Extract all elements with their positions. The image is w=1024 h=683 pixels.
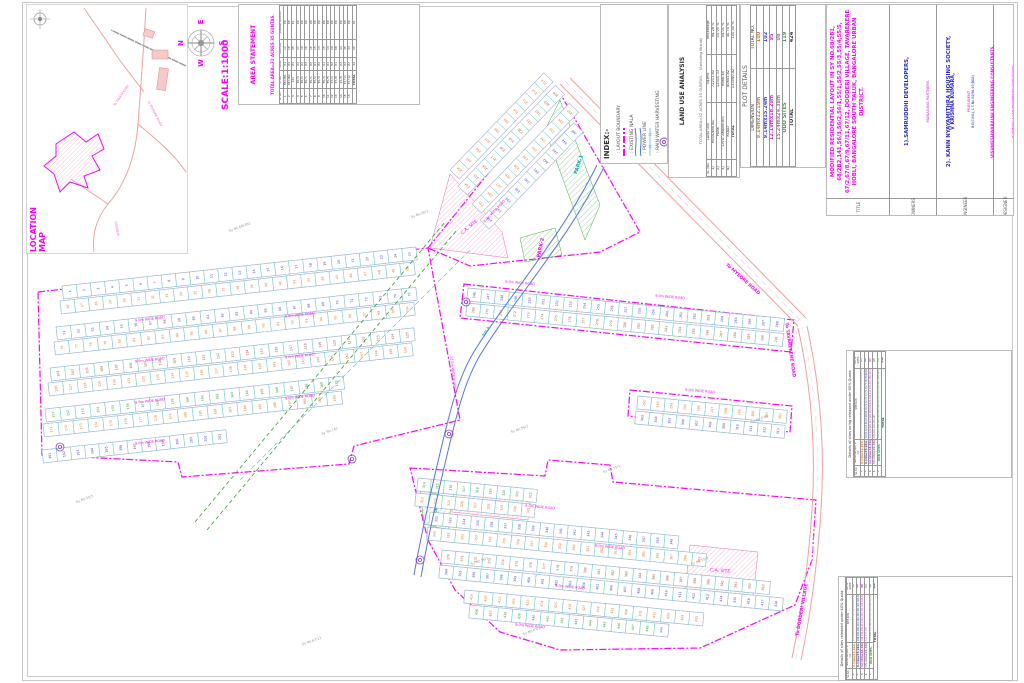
svg-text:106: 106 bbox=[129, 362, 134, 368]
svg-text:100: 100 bbox=[405, 306, 410, 312]
svg-text:61: 61 bbox=[206, 315, 210, 319]
area-statement-title: AREA STATEMENT bbox=[250, 25, 257, 85]
svg-text:289: 289 bbox=[746, 333, 751, 339]
svg-text:148: 148 bbox=[374, 350, 379, 356]
svg-text:314: 314 bbox=[422, 482, 427, 488]
svg-text:349: 349 bbox=[669, 539, 674, 545]
svg-text:163: 163 bbox=[230, 392, 235, 398]
svg-text:28: 28 bbox=[94, 301, 98, 305]
svg-text:139: 139 bbox=[243, 365, 248, 371]
svg-text:246: 246 bbox=[472, 292, 477, 298]
svg-text:110: 110 bbox=[187, 356, 192, 362]
svg-text:271: 271 bbox=[499, 310, 504, 316]
svg-text:290: 290 bbox=[760, 335, 765, 341]
svg-text:12: 12 bbox=[223, 272, 227, 276]
svg-text:48: 48 bbox=[377, 270, 381, 274]
svg-text:365: 365 bbox=[641, 551, 646, 557]
svg-text:130: 130 bbox=[112, 379, 117, 385]
area-statement-total: TOTAL323501 bbox=[352, 6, 356, 104]
svg-text:330: 330 bbox=[513, 506, 518, 512]
svg-text:335: 335 bbox=[476, 520, 481, 526]
svg-text:6: 6 bbox=[139, 283, 143, 285]
svg-text:263: 263 bbox=[706, 314, 711, 320]
svg-text:77: 77 bbox=[74, 344, 78, 348]
legend-item: : RAIN WATER HARVESTING bbox=[652, 5, 665, 163]
svg-text:8: 8 bbox=[167, 279, 171, 281]
svg-text:261: 261 bbox=[679, 312, 684, 318]
svg-text:124: 124 bbox=[391, 333, 396, 339]
svg-text:192: 192 bbox=[62, 451, 67, 457]
svg-text:286: 286 bbox=[705, 329, 710, 335]
svg-text:43: 43 bbox=[306, 278, 310, 282]
svg-text:423: 423 bbox=[526, 599, 531, 605]
svg-text:56: 56 bbox=[134, 322, 138, 326]
svg-text:381: 381 bbox=[597, 568, 602, 574]
svg-text:280: 280 bbox=[623, 322, 628, 328]
svg-text:439: 439 bbox=[517, 613, 522, 619]
svg-text:102: 102 bbox=[70, 369, 75, 375]
svg-text:326: 326 bbox=[460, 501, 465, 507]
svg-text:293: 293 bbox=[656, 401, 661, 407]
svg-text:167: 167 bbox=[290, 385, 295, 391]
svg-text:384: 384 bbox=[638, 572, 643, 578]
svg-text:255: 255 bbox=[596, 304, 601, 310]
svg-text:277: 277 bbox=[581, 318, 586, 324]
svg-text:279: 279 bbox=[609, 320, 614, 326]
svg-text:57: 57 bbox=[148, 321, 152, 325]
svg-text:191: 191 bbox=[48, 452, 53, 458]
svg-text:91: 91 bbox=[276, 322, 280, 326]
svg-text:274: 274 bbox=[540, 314, 545, 320]
svg-text:258: 258 bbox=[637, 308, 642, 314]
svg-text:309: 309 bbox=[722, 423, 727, 429]
svg-text:1: 1 bbox=[68, 290, 72, 292]
svg-text:428: 428 bbox=[596, 606, 601, 612]
svg-text:27: 27 bbox=[80, 303, 84, 307]
svg-text:202: 202 bbox=[203, 435, 208, 441]
svg-text:432: 432 bbox=[652, 612, 657, 618]
svg-text:16: 16 bbox=[280, 266, 284, 270]
svg-text:154: 154 bbox=[96, 406, 101, 412]
svg-text:144: 144 bbox=[316, 356, 321, 362]
land-use-title: LAND USE ANALYSIS bbox=[679, 57, 686, 125]
svg-text:375: 375 bbox=[515, 561, 520, 567]
svg-text:421: 421 bbox=[497, 597, 502, 603]
svg-text:422: 422 bbox=[511, 598, 516, 604]
svg-text:75: 75 bbox=[407, 292, 411, 296]
svg-text:352: 352 bbox=[460, 534, 465, 540]
road-label: 9.0m WIDE ROAD bbox=[685, 388, 715, 395]
svg-text:281: 281 bbox=[636, 323, 641, 329]
svg-text:194: 194 bbox=[90, 448, 95, 454]
svg-text:374: 374 bbox=[501, 559, 506, 565]
svg-text:20: 20 bbox=[337, 260, 341, 264]
svg-text:5: 5 bbox=[125, 284, 129, 286]
svg-text:414: 414 bbox=[719, 595, 724, 601]
svg-text:284: 284 bbox=[678, 327, 683, 333]
release-total: TOTAL258 bbox=[881, 352, 885, 477]
svg-text:89: 89 bbox=[247, 325, 251, 329]
svg-text:389: 389 bbox=[706, 579, 711, 585]
svg-text:152: 152 bbox=[66, 410, 71, 416]
svg-text:427: 427 bbox=[582, 605, 587, 611]
svg-text:307: 307 bbox=[694, 420, 699, 426]
svg-text:37: 37 bbox=[221, 287, 225, 291]
svg-text:115: 115 bbox=[260, 348, 265, 354]
svg-text:68: 68 bbox=[307, 303, 311, 307]
release-table-60-quota: Details of sites being released under 60… bbox=[846, 350, 1012, 478]
svg-text:440: 440 bbox=[531, 614, 536, 620]
svg-text:17: 17 bbox=[294, 264, 298, 268]
svg-text:40: 40 bbox=[264, 283, 268, 287]
svg-text:136: 136 bbox=[199, 369, 204, 375]
svg-text:345: 345 bbox=[614, 533, 619, 539]
svg-text:79: 79 bbox=[103, 341, 107, 345]
svg-text:300: 300 bbox=[751, 410, 756, 416]
svg-text:94: 94 bbox=[319, 317, 323, 321]
svg-text:449: 449 bbox=[659, 627, 664, 633]
svg-text:19: 19 bbox=[323, 261, 327, 265]
svg-text:116: 116 bbox=[274, 346, 279, 352]
svg-text:272: 272 bbox=[512, 311, 517, 317]
svg-text:437: 437 bbox=[489, 610, 494, 616]
svg-text:58: 58 bbox=[163, 319, 167, 323]
svg-text:425: 425 bbox=[554, 602, 559, 608]
svg-text:98: 98 bbox=[377, 310, 381, 314]
svg-text:406: 406 bbox=[609, 585, 614, 591]
svg-text:137: 137 bbox=[214, 368, 219, 374]
svg-text:282: 282 bbox=[650, 324, 655, 330]
svg-text:302: 302 bbox=[778, 413, 783, 419]
svg-text:407: 407 bbox=[623, 586, 628, 592]
svg-text:3: 3 bbox=[96, 287, 100, 289]
svg-text:109: 109 bbox=[172, 358, 177, 364]
svg-text:262: 262 bbox=[692, 313, 697, 319]
svg-text:169: 169 bbox=[319, 382, 324, 388]
svg-text:138: 138 bbox=[228, 366, 233, 372]
svg-text:341: 341 bbox=[559, 528, 564, 534]
svg-text:283: 283 bbox=[664, 325, 669, 331]
svg-text:337: 337 bbox=[503, 523, 508, 529]
svg-text:149: 149 bbox=[389, 348, 394, 354]
svg-text:266: 266 bbox=[747, 318, 752, 324]
svg-text:51: 51 bbox=[62, 330, 66, 334]
survey-number-label: Sy No.56/2 bbox=[410, 209, 429, 219]
svg-text:394: 394 bbox=[444, 569, 449, 575]
svg-text:393: 393 bbox=[761, 584, 766, 590]
svg-text:429: 429 bbox=[610, 607, 615, 613]
svg-text:80: 80 bbox=[117, 339, 121, 343]
svg-text:319: 319 bbox=[488, 488, 493, 494]
svg-text:141: 141 bbox=[272, 361, 277, 367]
svg-text:380: 380 bbox=[583, 567, 588, 573]
svg-text:42: 42 bbox=[292, 279, 296, 283]
svg-text:313: 313 bbox=[776, 428, 781, 434]
svg-text:78: 78 bbox=[89, 342, 93, 346]
svg-text:298: 298 bbox=[724, 408, 729, 414]
svg-text:351: 351 bbox=[446, 532, 451, 538]
svg-text:171: 171 bbox=[49, 426, 54, 432]
svg-text:306: 306 bbox=[681, 419, 686, 425]
svg-text:321: 321 bbox=[515, 491, 520, 497]
svg-text:88: 88 bbox=[233, 326, 237, 330]
svg-text:273: 273 bbox=[526, 312, 531, 318]
svg-text:342: 342 bbox=[572, 529, 577, 535]
svg-text:2: 2 bbox=[82, 289, 86, 291]
svg-text:104: 104 bbox=[100, 366, 105, 372]
svg-text:181: 181 bbox=[198, 410, 203, 416]
svg-text:254: 254 bbox=[582, 303, 587, 309]
svg-text:99: 99 bbox=[391, 309, 395, 313]
svg-text:131: 131 bbox=[127, 377, 132, 383]
svg-text:175: 175 bbox=[109, 420, 114, 426]
svg-text:203: 203 bbox=[217, 434, 222, 440]
svg-text:200: 200 bbox=[175, 438, 180, 444]
svg-text:84: 84 bbox=[175, 333, 179, 337]
location-map-drawing: To MYSORE ROADTo TAVAREKEREDODDERI bbox=[26, 4, 188, 254]
svg-text:364: 364 bbox=[627, 550, 632, 556]
plot-details-title: PLOT DETAILS bbox=[741, 5, 750, 167]
svg-text:161: 161 bbox=[200, 395, 205, 401]
svg-text:118: 118 bbox=[303, 343, 308, 349]
svg-text:172: 172 bbox=[64, 425, 69, 431]
svg-text:83: 83 bbox=[161, 334, 165, 338]
road-label: 9.0m WIDE ROAD bbox=[655, 294, 685, 301]
svg-text:442: 442 bbox=[560, 617, 565, 623]
svg-text:101: 101 bbox=[56, 370, 61, 376]
svg-text:294: 294 bbox=[669, 403, 674, 409]
svg-text:332: 332 bbox=[434, 516, 439, 522]
svg-text:33: 33 bbox=[165, 293, 169, 297]
svg-text:146: 146 bbox=[345, 353, 350, 359]
svg-text:111: 111 bbox=[201, 354, 206, 360]
svg-text:418: 418 bbox=[774, 601, 779, 607]
svg-text:55: 55 bbox=[119, 324, 123, 328]
svg-text:74: 74 bbox=[393, 294, 397, 298]
svg-text:356: 356 bbox=[516, 539, 521, 545]
svg-text:297: 297 bbox=[710, 406, 715, 412]
svg-text:417: 417 bbox=[760, 599, 765, 605]
svg-text:344: 344 bbox=[600, 532, 605, 538]
svg-text:93: 93 bbox=[305, 318, 309, 322]
svg-text:379: 379 bbox=[569, 566, 574, 572]
svg-text:129: 129 bbox=[98, 381, 103, 387]
svg-text:333: 333 bbox=[448, 517, 453, 523]
svg-text:436: 436 bbox=[474, 609, 479, 615]
svg-text:285: 285 bbox=[691, 328, 696, 334]
svg-text:291: 291 bbox=[774, 336, 779, 342]
svg-text:30: 30 bbox=[122, 298, 126, 302]
svg-text:424: 424 bbox=[540, 601, 545, 607]
svg-text:85: 85 bbox=[189, 331, 193, 335]
svg-text:31: 31 bbox=[137, 297, 141, 301]
svg-text:166: 166 bbox=[275, 387, 280, 393]
svg-text:278: 278 bbox=[595, 319, 600, 325]
svg-text:397: 397 bbox=[485, 573, 490, 579]
svg-text:87: 87 bbox=[218, 328, 222, 332]
svg-text:44: 44 bbox=[321, 276, 325, 280]
svg-text:179: 179 bbox=[168, 413, 173, 419]
svg-text:265: 265 bbox=[734, 317, 739, 323]
svg-text:256: 256 bbox=[610, 305, 615, 311]
svg-text:178: 178 bbox=[153, 415, 158, 421]
compass-letter: E bbox=[197, 19, 205, 24]
plot-details-total: TOTAL424 bbox=[789, 6, 796, 167]
drawing-sheet: PARK-1PARK-2PARK-3C.A. SITEC.A. SITEC.A.… bbox=[0, 0, 1024, 683]
svg-text:64: 64 bbox=[249, 310, 253, 314]
svg-text:339: 339 bbox=[531, 525, 536, 531]
svg-text:184: 184 bbox=[243, 405, 248, 411]
svg-text:45: 45 bbox=[335, 275, 339, 279]
svg-text:411: 411 bbox=[678, 591, 683, 597]
svg-text:292: 292 bbox=[642, 400, 647, 406]
svg-text:81: 81 bbox=[132, 337, 136, 341]
legend-item: : LAYOUT BOUNDARY bbox=[613, 5, 626, 163]
svg-text:441: 441 bbox=[546, 616, 551, 622]
svg-text:35: 35 bbox=[193, 290, 197, 294]
svg-text:325: 325 bbox=[446, 499, 451, 505]
svg-text:196: 196 bbox=[118, 445, 123, 451]
svg-text:434: 434 bbox=[680, 614, 685, 620]
svg-text:268: 268 bbox=[775, 321, 780, 327]
svg-text:353: 353 bbox=[474, 535, 479, 541]
svg-text:9: 9 bbox=[181, 278, 185, 280]
svg-text:259: 259 bbox=[651, 309, 656, 315]
svg-text:444: 444 bbox=[588, 620, 593, 626]
svg-text:162: 162 bbox=[215, 393, 220, 399]
svg-text:348: 348 bbox=[655, 537, 660, 543]
svg-text:413: 413 bbox=[705, 594, 710, 600]
svg-text:377: 377 bbox=[542, 563, 547, 569]
svg-text:97: 97 bbox=[362, 312, 366, 316]
svg-text:323: 323 bbox=[420, 497, 425, 503]
survey-number-label: Sy No.56/3 bbox=[510, 424, 529, 434]
scale-label: SCALE:1:1000 bbox=[221, 14, 235, 110]
svg-text:382: 382 bbox=[610, 570, 615, 576]
svg-text:299: 299 bbox=[737, 409, 742, 415]
index-legend: INDEX:- : LAYOUT BOUNDARY : EXISTING NAL… bbox=[600, 4, 668, 164]
svg-text:405: 405 bbox=[595, 583, 600, 589]
svg-text:185: 185 bbox=[258, 403, 263, 409]
svg-text:133: 133 bbox=[156, 374, 161, 380]
svg-text:82: 82 bbox=[146, 336, 150, 340]
svg-text:18: 18 bbox=[308, 263, 312, 267]
svg-text:357: 357 bbox=[530, 540, 535, 546]
area-statement-table: AREA STATEMENT TOTAL AREA=32 ACRES 35 GU… bbox=[238, 4, 420, 105]
svg-text:399: 399 bbox=[513, 576, 518, 582]
svg-text:398: 398 bbox=[499, 574, 504, 580]
svg-text:65: 65 bbox=[263, 308, 267, 312]
svg-text:387: 387 bbox=[679, 576, 684, 582]
svg-text:412: 412 bbox=[691, 593, 696, 599]
svg-text:295: 295 bbox=[683, 404, 688, 410]
svg-text:105: 105 bbox=[114, 364, 119, 370]
svg-text:317: 317 bbox=[462, 486, 467, 492]
svg-text:327: 327 bbox=[473, 502, 478, 508]
svg-text:66: 66 bbox=[278, 307, 282, 311]
svg-text:76: 76 bbox=[60, 345, 64, 349]
svg-text:174: 174 bbox=[94, 421, 99, 427]
svg-text:52: 52 bbox=[76, 329, 80, 333]
svg-text:39: 39 bbox=[250, 284, 254, 288]
nala-label: NALA bbox=[481, 325, 491, 337]
svg-text:23: 23 bbox=[379, 255, 383, 259]
svg-text:250: 250 bbox=[527, 297, 532, 303]
location-map-title: LOCATION MAP bbox=[29, 186, 43, 252]
release-table-title: Details of sites being released under 60… bbox=[847, 351, 854, 477]
svg-text:401: 401 bbox=[540, 578, 545, 584]
svg-text:34: 34 bbox=[179, 292, 183, 296]
svg-text:90: 90 bbox=[261, 323, 265, 327]
svg-text:318: 318 bbox=[475, 487, 480, 493]
engineer-row-label: ENGINEER bbox=[937, 198, 993, 215]
svg-text:201: 201 bbox=[189, 437, 194, 443]
svg-text:117: 117 bbox=[289, 345, 294, 351]
svg-text:408: 408 bbox=[636, 587, 641, 593]
svg-text:415: 415 bbox=[733, 597, 738, 603]
svg-text:86: 86 bbox=[204, 330, 208, 334]
svg-text:311: 311 bbox=[749, 425, 754, 431]
svg-text:134: 134 bbox=[170, 373, 175, 379]
svg-text:350: 350 bbox=[432, 531, 437, 537]
svg-text:366: 366 bbox=[655, 552, 660, 558]
svg-text:260: 260 bbox=[665, 310, 670, 316]
svg-text:247: 247 bbox=[486, 293, 491, 299]
svg-text:147: 147 bbox=[359, 352, 364, 358]
svg-text:145: 145 bbox=[330, 355, 335, 361]
svg-text:420: 420 bbox=[483, 595, 488, 601]
svg-text:305: 305 bbox=[667, 418, 672, 424]
svg-text:183: 183 bbox=[228, 407, 233, 413]
svg-text:270: 270 bbox=[485, 308, 490, 314]
svg-text:416: 416 bbox=[746, 598, 751, 604]
svg-text:371: 371 bbox=[460, 555, 465, 561]
svg-text:426: 426 bbox=[568, 603, 573, 609]
svg-text:150: 150 bbox=[403, 347, 408, 353]
svg-text:132: 132 bbox=[141, 376, 146, 382]
svg-text:143: 143 bbox=[301, 358, 306, 364]
svg-text:4: 4 bbox=[110, 286, 114, 288]
svg-text:53: 53 bbox=[91, 327, 95, 331]
svg-text:370: 370 bbox=[446, 554, 451, 560]
svg-text:304: 304 bbox=[654, 416, 659, 422]
svg-text:322: 322 bbox=[528, 492, 533, 498]
svg-text:142: 142 bbox=[287, 360, 292, 366]
svg-text:159: 159 bbox=[170, 398, 175, 404]
svg-text:447: 447 bbox=[631, 624, 636, 630]
svg-text:359: 359 bbox=[558, 543, 563, 549]
svg-text:25: 25 bbox=[407, 252, 411, 256]
svg-text:361: 361 bbox=[586, 546, 591, 552]
svg-text:391: 391 bbox=[734, 582, 739, 588]
svg-text:367: 367 bbox=[669, 554, 674, 560]
svg-text:41: 41 bbox=[278, 281, 282, 285]
svg-text:276: 276 bbox=[568, 316, 573, 322]
title-row-label: TITLE bbox=[827, 198, 889, 215]
compass-rose: ENSW bbox=[176, 18, 226, 68]
svg-text:103: 103 bbox=[85, 367, 90, 373]
svg-text:446: 446 bbox=[617, 623, 622, 629]
svg-text:123: 123 bbox=[376, 335, 381, 341]
svg-text:29: 29 bbox=[108, 300, 112, 304]
svg-text:195: 195 bbox=[104, 446, 109, 452]
designer-row-label: DESIGNER bbox=[994, 198, 1014, 215]
svg-text:96: 96 bbox=[348, 314, 352, 318]
engineer-name: V KRISHNA KUMARA, bbox=[951, 73, 956, 130]
svg-text:378: 378 bbox=[556, 564, 561, 570]
svg-text:70: 70 bbox=[335, 300, 339, 304]
svg-text:430: 430 bbox=[624, 609, 629, 615]
